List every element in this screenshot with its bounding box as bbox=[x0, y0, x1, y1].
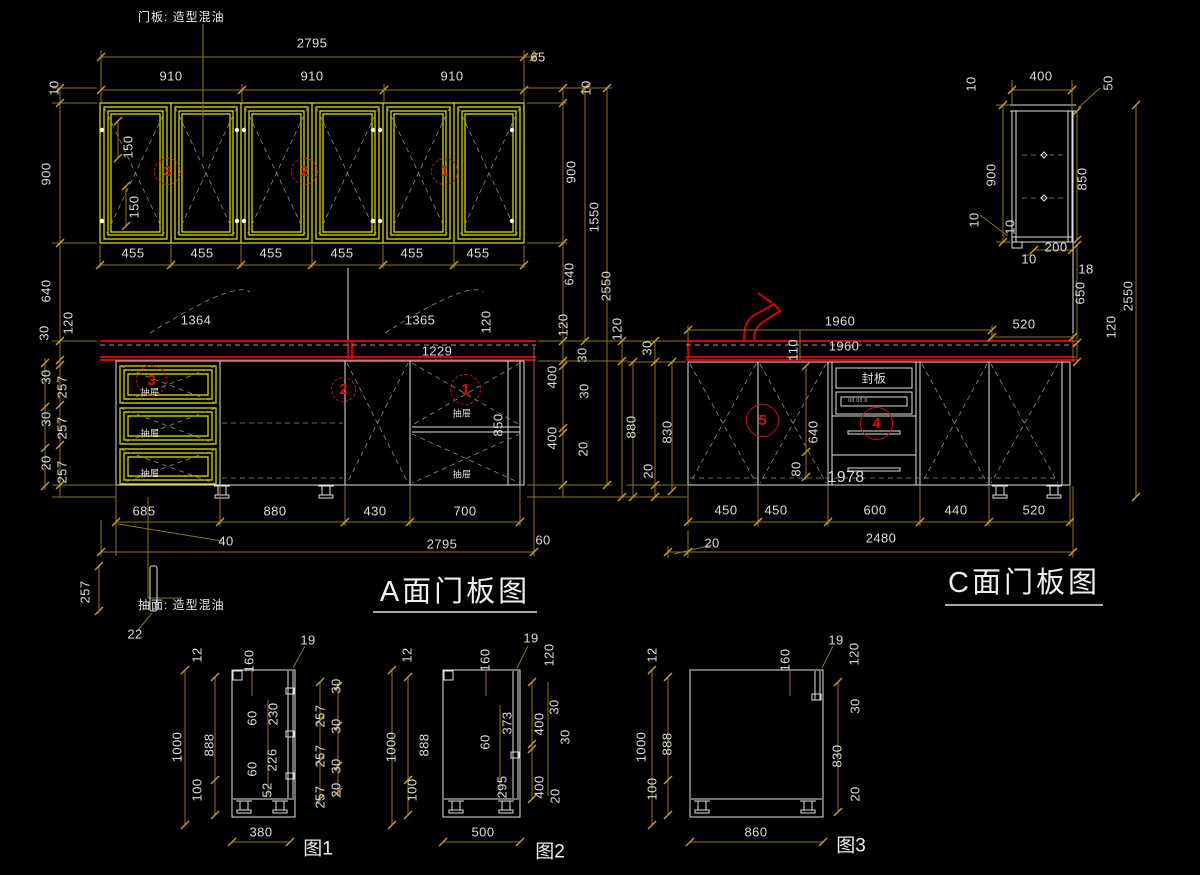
dim-label: 50 bbox=[1101, 75, 1116, 90]
dim-label: 600 bbox=[864, 503, 887, 518]
dim-label: 100 bbox=[645, 778, 660, 801]
dim-label: 900 bbox=[39, 163, 54, 186]
dim-label: 380 bbox=[250, 825, 273, 840]
dim-label: 抽屉 bbox=[453, 407, 472, 420]
dim-label: 19 bbox=[828, 633, 843, 648]
dim-label: 2550 bbox=[1121, 281, 1136, 312]
dim-label: 455 bbox=[467, 246, 490, 261]
dim-label: 160 bbox=[242, 650, 257, 673]
dim-label: 10 bbox=[1003, 219, 1018, 234]
label-fig2: 图2 bbox=[535, 837, 565, 864]
label-fig3: 图3 bbox=[836, 831, 866, 858]
cad-canvas: 2795659109109104554554554554554551501501… bbox=[0, 0, 1200, 875]
dim-label: 400 bbox=[545, 366, 560, 389]
dim-label: 650 bbox=[1073, 282, 1088, 305]
dim-label: 30 bbox=[39, 369, 54, 384]
dim-label: 40 bbox=[218, 534, 233, 549]
dim-label: 120 bbox=[847, 643, 862, 666]
label-seal-board: 封板 bbox=[862, 370, 887, 387]
dim-label: 19 bbox=[523, 631, 538, 646]
dim-label: 19 bbox=[300, 633, 315, 648]
dim-label: 400 bbox=[532, 776, 547, 799]
dim-label: 520 bbox=[1013, 317, 1036, 332]
dim-label: 455 bbox=[401, 246, 424, 261]
dim-label: 20 bbox=[39, 455, 54, 470]
dim-label: 910 bbox=[301, 69, 324, 84]
dim-label: 455 bbox=[331, 246, 354, 261]
dim-label: 257 bbox=[313, 745, 328, 768]
title-view-a: A面门板图 bbox=[380, 568, 530, 610]
dim-label: 880 bbox=[264, 504, 287, 519]
dim-label: 440 bbox=[945, 503, 968, 518]
dim-label: 1000 bbox=[170, 732, 185, 763]
dim-label: 900 bbox=[564, 161, 579, 184]
dim-label: 640 bbox=[806, 421, 821, 444]
dim-label: 2480 bbox=[866, 531, 897, 546]
dim-label: 295 bbox=[495, 776, 510, 799]
dim-label: 455 bbox=[191, 246, 214, 261]
dim-label: 80 bbox=[789, 461, 804, 476]
dim-label: 12 bbox=[645, 647, 660, 662]
annotation-layer: 2795659109109104554554554554554551501501… bbox=[0, 0, 1200, 875]
dim-label: 10 bbox=[967, 212, 982, 227]
dim-label: 450 bbox=[765, 503, 788, 518]
dim-label: 400 bbox=[1030, 69, 1053, 84]
dim-label: 30 bbox=[547, 699, 562, 714]
dim-label: 520 bbox=[1023, 503, 1046, 518]
dim-label: 1960 bbox=[829, 339, 860, 354]
dim-label: 120 bbox=[542, 644, 557, 667]
dim-label: 400 bbox=[545, 427, 560, 450]
dim-label: 20 bbox=[641, 463, 656, 478]
dim-label: 257 bbox=[313, 786, 328, 809]
dim-label: 20 bbox=[548, 788, 563, 803]
dim-label: 1000 bbox=[634, 732, 649, 763]
dim-label: 888 bbox=[660, 733, 675, 756]
dim-label: 10 bbox=[1021, 252, 1036, 267]
dim-label: 120 bbox=[479, 311, 494, 334]
dim-label: 430 bbox=[364, 504, 387, 519]
dim-label: 30 bbox=[39, 411, 54, 426]
dim-label: 100 bbox=[405, 779, 420, 802]
dim-label: 850 bbox=[491, 414, 506, 437]
dim-label: 30 bbox=[848, 698, 863, 713]
dim-label: 110 bbox=[786, 339, 801, 361]
dim-label: 150 bbox=[121, 136, 136, 159]
dim-label: 1365 bbox=[405, 313, 436, 328]
dim-label: 18 bbox=[1078, 262, 1093, 277]
dim-label: 150 bbox=[127, 196, 142, 219]
dim-label: 30 bbox=[329, 758, 344, 773]
dim-label: 30 bbox=[575, 347, 590, 362]
dim-label: 257 bbox=[313, 705, 328, 728]
dim-label: 100 bbox=[190, 779, 205, 802]
dim-label: 1229 bbox=[422, 344, 453, 359]
callout-2: 2 bbox=[331, 377, 356, 402]
dim-label: 1960 bbox=[825, 314, 856, 329]
dim-label: 1550 bbox=[587, 202, 602, 233]
dim-label: 120 bbox=[610, 318, 625, 341]
dim-label: 30 bbox=[577, 383, 592, 398]
dim-label: 850 bbox=[1075, 168, 1090, 191]
dim-label: 10 bbox=[47, 80, 62, 95]
title-view-c: C面门板图 bbox=[948, 559, 1100, 601]
dim-label: 120 bbox=[61, 312, 76, 335]
callout-2: 2 bbox=[291, 158, 318, 185]
dim-label: 30 bbox=[329, 678, 344, 693]
dim-label: 700 bbox=[454, 504, 477, 519]
dim-label: 455 bbox=[260, 246, 283, 261]
dim-label: 900 bbox=[984, 164, 999, 187]
dim-label: 120 bbox=[556, 314, 571, 337]
dim-label: 65 bbox=[530, 50, 545, 65]
dim-label: 20 bbox=[704, 536, 719, 551]
dim-label: 60 bbox=[245, 761, 260, 776]
dim-label: 450 bbox=[715, 503, 738, 518]
callout-1: 1 bbox=[431, 158, 458, 185]
dim-label: 257 bbox=[55, 461, 70, 484]
dim-label: 30 bbox=[329, 718, 344, 733]
callout-3: 3 bbox=[154, 158, 181, 185]
dim-label: 22 bbox=[127, 627, 142, 642]
dim-label: 200 bbox=[1045, 240, 1068, 255]
dim-label: 60 bbox=[478, 734, 493, 749]
dim-label: 抽屉 bbox=[141, 427, 160, 440]
dim-label: 30 bbox=[558, 729, 573, 744]
dim-label: 226 bbox=[265, 749, 280, 772]
dim-label: 120 bbox=[1104, 316, 1119, 339]
dim-label: 2795 bbox=[297, 36, 328, 51]
dim-label: 30 bbox=[37, 325, 52, 340]
dim-label: 2550 bbox=[599, 271, 614, 302]
dim-label: 10 bbox=[579, 80, 594, 95]
dim-label: 抽屉 bbox=[453, 468, 472, 481]
dim-label: 830 bbox=[660, 421, 675, 444]
dim-label: 160 bbox=[478, 649, 493, 672]
dim-label: 160 bbox=[778, 649, 793, 672]
dim-label: 257 bbox=[55, 417, 70, 440]
dim-label: 12 bbox=[400, 647, 415, 662]
dim-label: 12 bbox=[190, 647, 205, 662]
dim-label: 455 bbox=[122, 246, 145, 261]
dim-label: 60 bbox=[535, 533, 550, 548]
dim-label: 60 bbox=[245, 710, 260, 725]
callout-4: 4 bbox=[860, 407, 893, 440]
dim-label: 860 bbox=[745, 825, 768, 840]
dim-label: 880 bbox=[624, 416, 639, 439]
dim-label: 抽屉 bbox=[141, 467, 160, 480]
dim-label: 257 bbox=[55, 376, 70, 399]
dim-label: 400 bbox=[532, 713, 547, 736]
dim-label: 500 bbox=[472, 825, 495, 840]
dim-label: 888 bbox=[202, 734, 217, 757]
dim-label: 685 bbox=[133, 504, 156, 519]
label-fig1: 图1 bbox=[303, 834, 333, 861]
dim-label: 20 bbox=[848, 786, 863, 801]
dim-label: 640 bbox=[562, 263, 577, 286]
callout-3: 3 bbox=[136, 365, 167, 396]
dim-label: 20 bbox=[576, 441, 591, 456]
dim-label: 1364 bbox=[181, 313, 212, 328]
dim-label: 830 bbox=[830, 745, 845, 768]
dim-label: 910 bbox=[160, 69, 183, 84]
dim-label: 30 bbox=[640, 340, 655, 355]
dim-label: 52 bbox=[260, 782, 275, 797]
dim-label: 257 bbox=[78, 581, 93, 604]
note-door-panel: 门板: 造型混油 bbox=[138, 8, 225, 25]
dim-label: 640 bbox=[39, 280, 54, 303]
dim-label: 888 bbox=[417, 734, 432, 757]
dim-label: 373 bbox=[500, 712, 515, 735]
dim-label: 00 00 0 bbox=[848, 398, 867, 404]
dim-label: 1000 bbox=[384, 732, 399, 763]
dim-label: 230 bbox=[266, 703, 281, 726]
dim-label: 2795 bbox=[427, 537, 458, 552]
callout-1: 1 bbox=[450, 374, 481, 405]
dim-label: 910 bbox=[441, 69, 464, 84]
dim-label: 10 bbox=[964, 76, 979, 91]
note-drawer-face: 抽面: 造型混油 bbox=[138, 596, 225, 613]
dim-label: 1978 bbox=[827, 469, 864, 487]
callout-5: 5 bbox=[746, 404, 779, 437]
dim-label: 20 bbox=[329, 782, 344, 797]
